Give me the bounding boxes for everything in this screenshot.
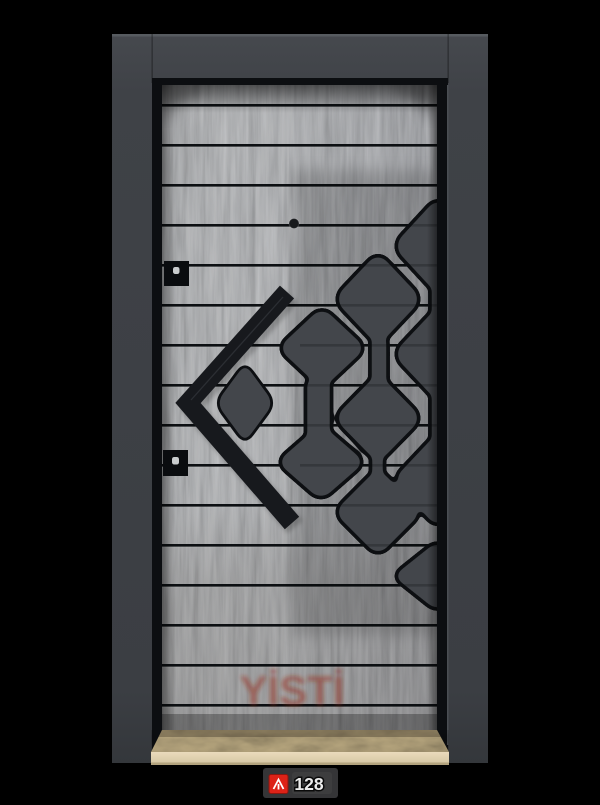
svg-text:YİSTİ: YİSTİ	[239, 667, 344, 714]
svg-text:128: 128	[294, 774, 323, 794]
